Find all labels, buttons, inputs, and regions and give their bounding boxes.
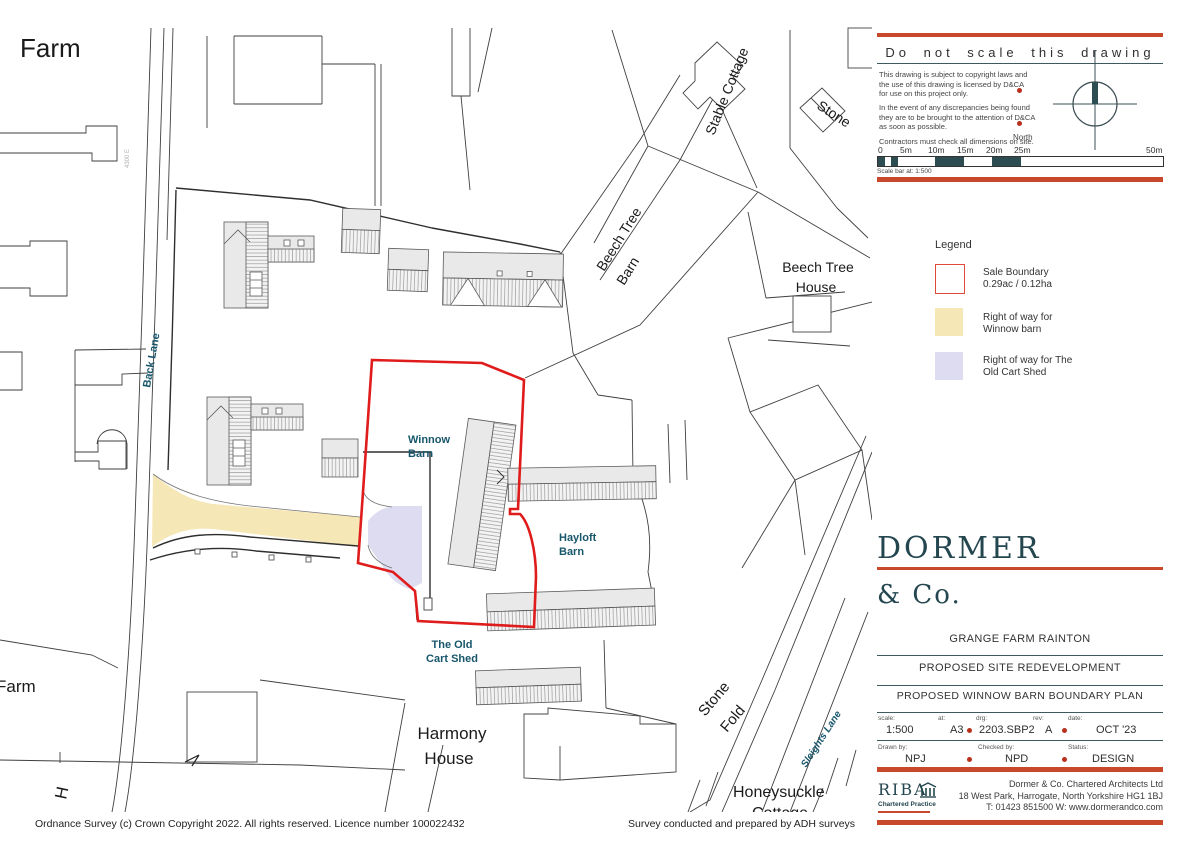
label-hayloft-barn-2: Barn bbox=[559, 546, 584, 558]
label-beech-tree-house-2: House bbox=[796, 279, 837, 295]
drawn-by-label: Drawn by: bbox=[878, 744, 907, 751]
building-long-barn bbox=[443, 252, 564, 307]
building-old-cart-shed bbox=[475, 667, 581, 705]
legend-item-row-winnow: Right of way for Winnow barn bbox=[983, 312, 1153, 336]
legend-label: Old Cart Shed bbox=[983, 367, 1046, 378]
at-field-label: at: bbox=[938, 715, 945, 722]
north-compass-icon bbox=[1035, 42, 1157, 154]
building-north-range-3 bbox=[387, 248, 428, 291]
firm-name: Dormer & Co. Chartered Architects Ltd bbox=[1009, 779, 1163, 789]
brand-suffix: & Co. bbox=[877, 580, 962, 610]
scale-tick: 5m bbox=[900, 145, 912, 155]
label-winnow-barn-2: Barn bbox=[408, 448, 433, 460]
rev-field-label: rev: bbox=[1033, 715, 1044, 722]
separator-dot bbox=[1062, 757, 1067, 762]
label-honeysuckle-1: Honeysuckle bbox=[733, 784, 825, 801]
checked-by-value: NPD bbox=[1005, 753, 1028, 765]
scale-tick: 15m bbox=[957, 145, 974, 155]
drawing-title: PROPOSED WINNOW BARN BOUNDARY PLAN bbox=[877, 690, 1163, 702]
riba-portico-icon bbox=[919, 782, 937, 798]
scheme-title: PROPOSED SITE REDEVELOPMENT bbox=[877, 662, 1163, 674]
scale-bar bbox=[877, 156, 1165, 168]
survey-credit: Survey conducted and prepared by ADH sur… bbox=[628, 818, 855, 830]
drawing-sheet: Farm Farm H Back Lane 4300 E Stable Cott… bbox=[0, 0, 1200, 848]
os-copyright-credit: Ordnance Survey (c) Crown Copyright 2022… bbox=[35, 818, 465, 830]
riba-subtitle: Chartered Practice bbox=[878, 801, 936, 808]
gate-marker bbox=[424, 598, 432, 610]
panel-bottom-bar bbox=[877, 820, 1163, 825]
ne-corner-building bbox=[848, 28, 872, 68]
riba-underline bbox=[878, 811, 930, 813]
project-title: GRANGE FARM RAINTON bbox=[877, 633, 1163, 645]
scale-tick: 10m bbox=[928, 145, 945, 155]
note-line: In the event of any discrepancies being … bbox=[879, 103, 1030, 112]
copyright-note: This drawing is subject to copyright law… bbox=[879, 70, 1039, 99]
north-label: North bbox=[1013, 133, 1033, 142]
label-farm-left: Farm bbox=[0, 677, 36, 696]
legend-swatch-row-winnow bbox=[935, 308, 963, 336]
legend-label: Sale Boundary bbox=[983, 267, 1049, 278]
note-line: for use on this project only. bbox=[879, 89, 968, 98]
legend-item-sale-boundary: Sale Boundary 0.29ac / 0.12ha bbox=[983, 267, 1153, 291]
separator-dot bbox=[967, 757, 972, 762]
label-beech-tree-house-1: Beech Tree bbox=[782, 259, 854, 275]
label-harmony-house-1: Harmony bbox=[418, 724, 487, 743]
tb-bottom-bar bbox=[877, 767, 1163, 772]
label-harmony-house-2: House bbox=[424, 749, 473, 768]
drg-value: 2203.SBP2 bbox=[979, 724, 1035, 736]
building-west-range-2 bbox=[322, 439, 358, 477]
scale-tick: 25m bbox=[1014, 145, 1031, 155]
scale-field-label: scale: bbox=[878, 715, 895, 722]
label-winnow-barn-1: Winnow bbox=[408, 434, 450, 446]
firm-address: 18 West Park, Harrogate, North Yorkshire… bbox=[959, 791, 1163, 801]
drg-field-label: drg: bbox=[976, 715, 987, 722]
note-line: as soon as possible. bbox=[879, 122, 947, 131]
date-field-label: date: bbox=[1068, 715, 1082, 722]
label-hayloft-barn-1: Hayloft bbox=[559, 532, 597, 544]
date-value: OCT '23 bbox=[1096, 724, 1136, 736]
legend-item-row-cart-shed: Right of way for The Old Cart Shed bbox=[983, 355, 1153, 379]
label-honeysuckle-2: Cottage bbox=[752, 805, 808, 812]
separator-dot bbox=[1062, 728, 1067, 733]
outbuilding-square-outline bbox=[187, 692, 257, 762]
label-old-cart-shed-1: The Old bbox=[432, 639, 473, 651]
label-farm-top: Farm bbox=[20, 33, 81, 63]
legend-label: Right of way for The bbox=[983, 355, 1072, 366]
building-hayloft-south bbox=[486, 588, 655, 631]
scale-value: 1:500 bbox=[886, 724, 914, 736]
status-value: DESIGN bbox=[1092, 753, 1134, 765]
tb-rule bbox=[877, 685, 1163, 686]
legend-title: Legend bbox=[935, 239, 972, 251]
scale-tick: 50m bbox=[1146, 145, 1163, 155]
firm-address-block: Dormer & Co. Chartered Architects Ltd 18… bbox=[940, 779, 1163, 814]
legend-swatch-row-cart-shed bbox=[935, 352, 963, 380]
label-grid-ref: 4300 E bbox=[125, 149, 131, 168]
legend-label: Right of way for bbox=[983, 312, 1052, 323]
brand-rule bbox=[877, 567, 1163, 570]
tb-rule bbox=[877, 655, 1163, 656]
checked-by-label: Checked by: bbox=[978, 744, 1014, 751]
map-background bbox=[0, 0, 872, 812]
scale-bar-caption: Scale bar at: 1:500 bbox=[877, 168, 932, 175]
tb-rule bbox=[877, 712, 1163, 713]
discrepancies-note: In the event of any discrepancies being … bbox=[879, 103, 1039, 132]
info-bottom-bar bbox=[877, 177, 1163, 182]
label-old-cart-shed-2: Cart Shed bbox=[426, 653, 478, 665]
drawn-by-value: NPJ bbox=[905, 753, 926, 765]
scale-tick: 20m bbox=[986, 145, 1003, 155]
legend-label: Winnow barn bbox=[983, 324, 1041, 335]
separator-dot bbox=[967, 728, 972, 733]
building-north-range-2 bbox=[341, 208, 381, 253]
note-line: the use of this drawing is licensed by D… bbox=[879, 80, 1024, 89]
status-label: Status: bbox=[1068, 744, 1088, 751]
note-marker-dot bbox=[1017, 88, 1022, 93]
note-line: they are to be brought to the attention … bbox=[879, 113, 1035, 122]
panel-top-bar bbox=[877, 33, 1163, 37]
note-marker-dot bbox=[1017, 121, 1022, 126]
at-value: A3 bbox=[950, 724, 963, 736]
site-plan-map: Farm Farm H Back Lane 4300 E Stable Cott… bbox=[0, 0, 872, 812]
rev-value: A bbox=[1045, 724, 1052, 736]
beech-tree-house-outline bbox=[793, 296, 831, 332]
legend-swatch-sale-boundary bbox=[935, 264, 965, 294]
note-line: This drawing is subject to copyright law… bbox=[879, 70, 1027, 79]
brand-name: DORMER bbox=[877, 531, 1041, 566]
scale-tick: 0 bbox=[878, 145, 883, 155]
firm-contact: T: 01423 851500 W: www.dormerandco.com bbox=[986, 802, 1163, 812]
legend-label: 0.29ac / 0.12ha bbox=[983, 279, 1052, 290]
building-hayloft-north bbox=[508, 466, 657, 502]
tb-rule bbox=[877, 740, 1163, 741]
